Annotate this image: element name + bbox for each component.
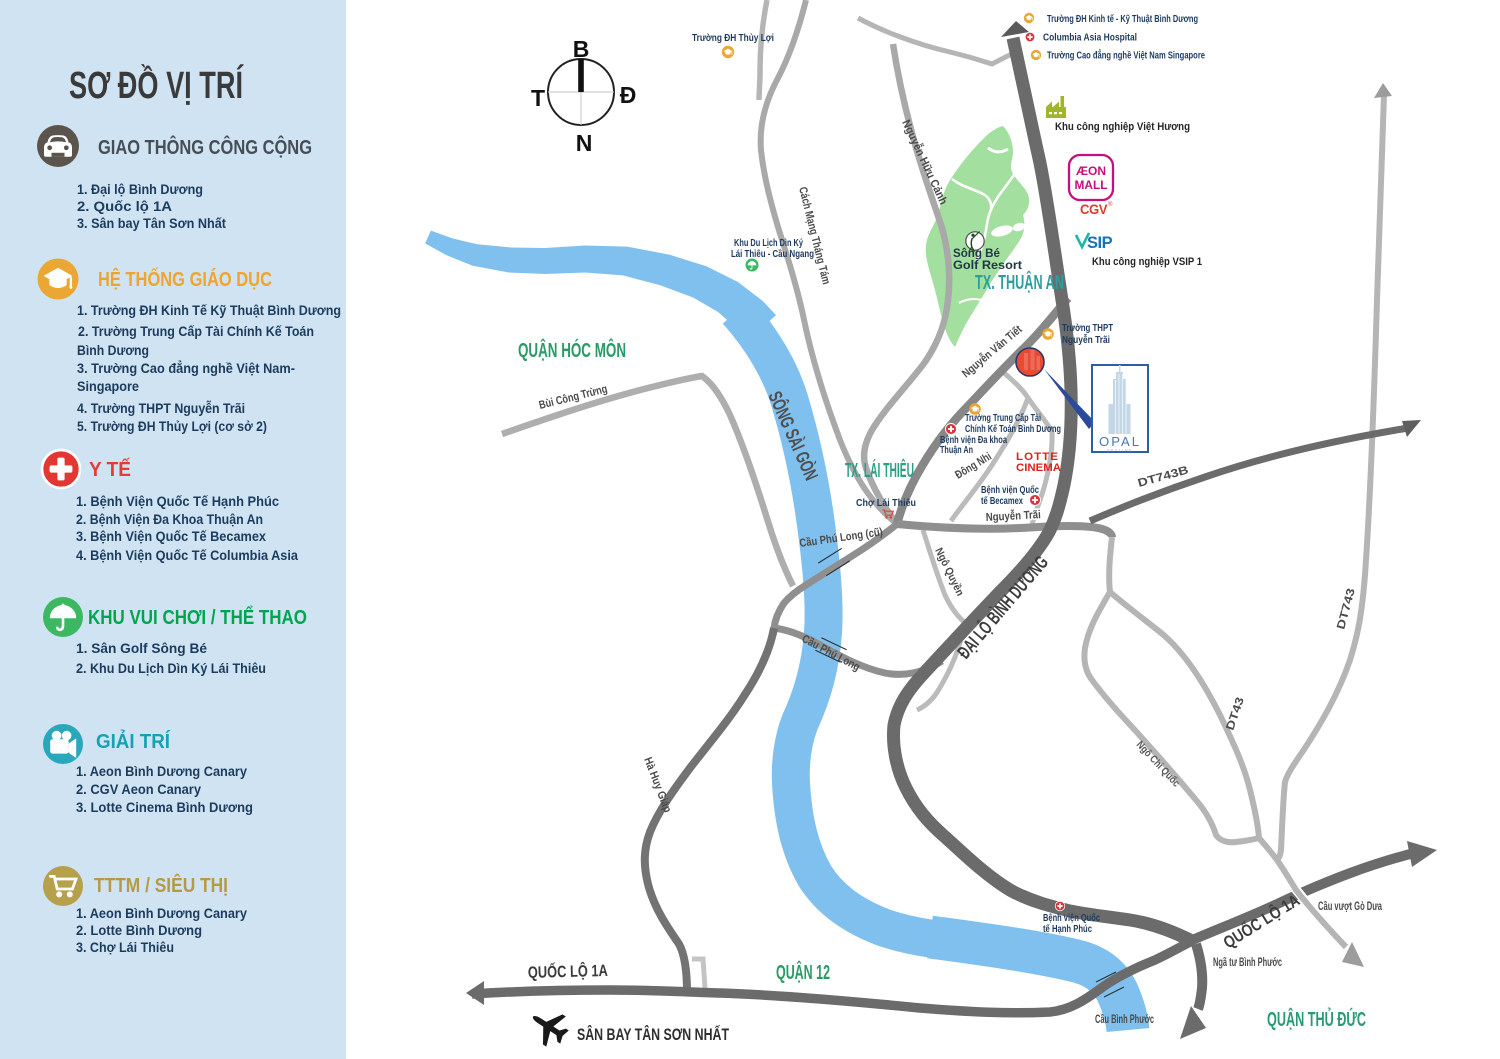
svg-text:Khu công nghiệp Việt Hương: Khu công nghiệp Việt Hương — [1055, 121, 1190, 133]
svg-text:QUẬN THỦ ĐỨC: QUẬN THỦ ĐỨC — [1267, 1007, 1366, 1031]
svg-text:2. CGV Aeon Canary: 2. CGV Aeon Canary — [76, 781, 201, 797]
svg-text:2. Lotte Bình Dương: 2. Lotte Bình Dương — [76, 922, 202, 938]
svg-text:SKYLINE: SKYLINE — [1107, 449, 1133, 453]
svg-text:Golf Resort: Golf Resort — [953, 260, 1022, 272]
svg-text:T: T — [531, 85, 545, 111]
svg-text:1. Aeon Bình Dương Canary: 1. Aeon Bình Dương Canary — [76, 905, 247, 921]
svg-text:4. Bệnh Viện Quốc Tế Columbia: 4. Bệnh Viện Quốc Tế Columbia Asia — [76, 547, 298, 563]
svg-text:Nguyễn Trãi: Nguyễn Trãi — [1062, 335, 1110, 346]
svg-text:Ngã tư Bình Phước: Ngã tư Bình Phước — [1213, 957, 1282, 969]
svg-text:Y TẾ: Y TẾ — [89, 458, 131, 481]
svg-text:SÂN BAY TÂN SƠN NHẤT: SÂN BAY TÂN SƠN NHẤT — [577, 1025, 729, 1044]
svg-text:Chính Kế Toán Bình Dương: Chính Kế Toán Bình Dương — [965, 424, 1061, 435]
svg-text:5. Trường ĐH Thủy Lợi (cơ sở 2: 5. Trường ĐH Thủy Lợi (cơ sở 2) — [77, 418, 267, 434]
svg-text:Cầu Bình Phước: Cầu Bình Phước — [1095, 1014, 1154, 1026]
svg-text:ÆON: ÆON — [1076, 166, 1106, 178]
svg-text:Cầu vượt Gò Dưa: Cầu vượt Gò Dưa — [1318, 901, 1382, 913]
svg-text:OPAL: OPAL — [1099, 434, 1141, 449]
svg-text:tế Hạnh Phúc: tế Hạnh Phúc — [1043, 924, 1092, 935]
svg-text:Bình Dương: Bình Dương — [77, 342, 149, 358]
svg-text:Khu Du Lịch Dìn Ký: Khu Du Lịch Dìn Ký — [734, 238, 803, 249]
svg-text:4. Trường THPT Nguyễn Trãi: 4. Trường THPT Nguyễn Trãi — [77, 400, 245, 416]
svg-text:1. Trường ĐH Kinh Tế Kỹ Thuật: 1. Trường ĐH Kinh Tế Kỹ Thuật Bình Dương — [77, 302, 341, 318]
svg-text:Lái Thiêu - Cầu Ngang: Lái Thiêu - Cầu Ngang — [731, 249, 814, 260]
svg-text:GIAO THÔNG CÔNG CỘNG: GIAO THÔNG CÔNG CỘNG — [98, 135, 312, 159]
svg-text:®: ® — [1108, 201, 1113, 208]
svg-text:Bệnh viện Quốc: Bệnh viện Quốc — [981, 485, 1039, 496]
svg-text:B: B — [573, 36, 590, 62]
svg-text:Bệnh viện Quốc: Bệnh viện Quốc — [1043, 913, 1100, 924]
svg-text:SƠ ĐỒ VỊ TRÍ: SƠ ĐỒ VỊ TRÍ — [69, 63, 244, 107]
svg-text:N: N — [576, 130, 593, 156]
svg-text:TX. THUẬN AN: TX. THUẬN AN — [975, 270, 1064, 294]
svg-text:SIP: SIP — [1087, 234, 1113, 252]
svg-text:QUẬN 12: QUẬN 12 — [776, 960, 830, 984]
svg-text:Chợ Lái Thiêu: Chợ Lái Thiêu — [856, 498, 916, 509]
svg-text:CGV: CGV — [1080, 201, 1108, 217]
svg-text:Đ: Đ — [620, 82, 637, 108]
svg-text:Trường Cao đẳng nghề Việt Nam: Trường Cao đẳng nghề Việt Nam Singapore — [1047, 50, 1205, 62]
svg-text:Columbia Asia Hospital: Columbia Asia Hospital — [1043, 33, 1137, 44]
svg-text:3. Chợ Lái Thiêu: 3. Chợ Lái Thiêu — [76, 939, 174, 955]
svg-text:Trường THPT: Trường THPT — [1062, 323, 1113, 334]
svg-text:1. Aeon Bình Dương Canary: 1. Aeon Bình Dương Canary — [76, 763, 247, 779]
svg-text:2. Trường Trung Cấp Tài Chính: 2. Trường Trung Cấp Tài Chính Kế Toán — [78, 323, 314, 339]
svg-text:Trường ĐH Kinh tế - Kỹ Thuật B: Trường ĐH Kinh tế - Kỹ Thuật Bình Dương — [1047, 14, 1198, 25]
svg-text:1. Đại lộ Bình Dương: 1. Đại lộ Bình Dương — [77, 181, 203, 197]
svg-text:3. Lotte Cinema Bình Dương: 3. Lotte Cinema Bình Dương — [76, 799, 253, 815]
svg-text:1. Bệnh Viện Quốc Tế Hạnh Phúc: 1. Bệnh Viện Quốc Tế Hạnh Phúc — [76, 493, 279, 509]
svg-text:2. Khu Du Lịch Dìn Ký Lái Thiê: 2. Khu Du Lịch Dìn Ký Lái Thiêu — [76, 660, 266, 676]
svg-text:Trường Trung Cấp Tài: Trường Trung Cấp Tài — [965, 413, 1041, 424]
svg-text:tế Becamex: tế Becamex — [981, 496, 1023, 507]
svg-text:Khu công nghiệp VSIP 1: Khu công nghiệp VSIP 1 — [1092, 256, 1202, 268]
svg-text:GIẢI TRÍ: GIẢI TRÍ — [96, 730, 170, 753]
svg-text:QUẬN HÓC MÔN: QUẬN HÓC MÔN — [518, 338, 626, 362]
svg-text:2. Bệnh Viện Đa Khoa Thuận An: 2. Bệnh Viện Đa Khoa Thuận An — [76, 511, 263, 527]
svg-text:2. Quốc lộ 1A: 2. Quốc lộ 1A — [77, 198, 172, 214]
svg-text:1. Sân Golf Sông Bé: 1. Sân Golf Sông Bé — [76, 640, 207, 656]
svg-text:Trường ĐH Thủy Lợi: Trường ĐH Thủy Lợi — [692, 33, 774, 44]
svg-text:3. Trường Cao đẳng nghề Việt N: 3. Trường Cao đẳng nghề Việt Nam- — [77, 359, 295, 376]
svg-text:Singapore: Singapore — [77, 378, 139, 394]
svg-text:TTTM / SIÊU THỊ: TTTM / SIÊU THỊ — [94, 873, 228, 897]
svg-text:3. Bệnh Viện Quốc Tế Becamex: 3. Bệnh Viện Quốc Tế Becamex — [76, 528, 266, 544]
svg-text:KHU VUI CHƠI / THỂ THAO: KHU VUI CHƠI / THỂ THAO — [88, 606, 307, 629]
svg-text:QUỐC LỘ 1A: QUỐC LỘ 1A — [528, 960, 609, 982]
svg-text:Thuận An: Thuận An — [940, 445, 973, 456]
svg-text:MALL: MALL — [1075, 180, 1108, 192]
svg-text:HỆ THỐNG GIÁO DỤC: HỆ THỐNG GIÁO DỤC — [98, 267, 272, 291]
svg-text:TX. LÁI THIÊU: TX. LÁI THIÊU — [845, 458, 914, 482]
svg-text:3. Sân bay Tân Sơn Nhất: 3. Sân bay Tân Sơn Nhất — [77, 215, 226, 231]
svg-text:CINEMA: CINEMA — [1016, 462, 1061, 474]
